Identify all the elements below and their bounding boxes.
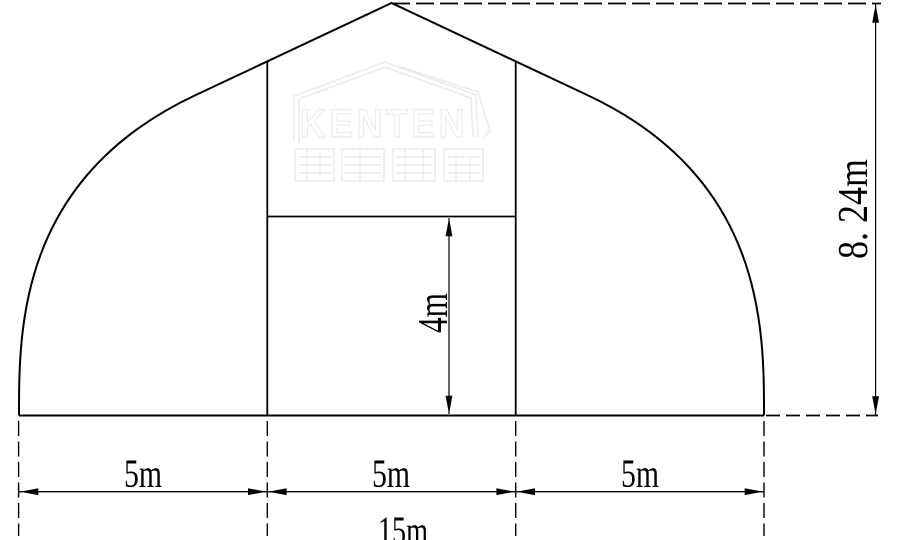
svg-text:KENTEN: KENTEN bbox=[300, 102, 468, 146]
svg-text:5m: 5m bbox=[372, 451, 410, 496]
svg-text:5m: 5m bbox=[124, 451, 162, 496]
svg-text:15m: 15m bbox=[378, 508, 428, 540]
svg-text:4m: 4m bbox=[411, 293, 457, 333]
svg-text:8. 24m: 8. 24m bbox=[831, 159, 877, 259]
svg-text:5m: 5m bbox=[621, 451, 659, 496]
